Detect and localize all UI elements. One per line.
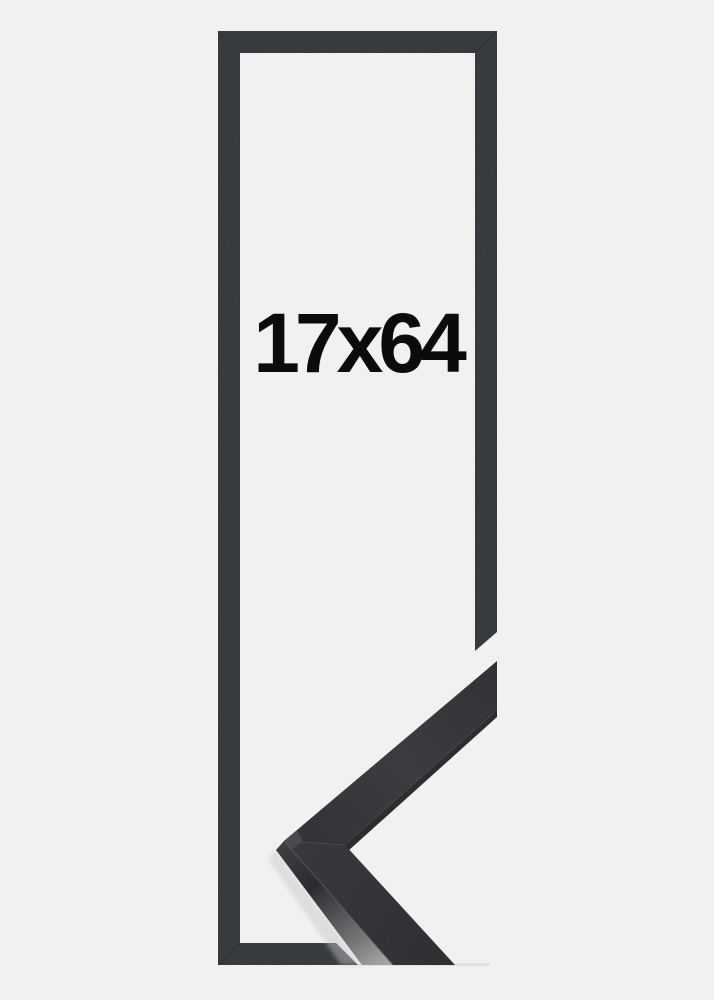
corner-sample (218, 31, 497, 966)
frame-size-label: 17x64 (218, 300, 497, 386)
frame-illustration (0, 0, 714, 1000)
corner-sample-texture (218, 31, 497, 965)
product-image: 17x64 (0, 0, 714, 1000)
